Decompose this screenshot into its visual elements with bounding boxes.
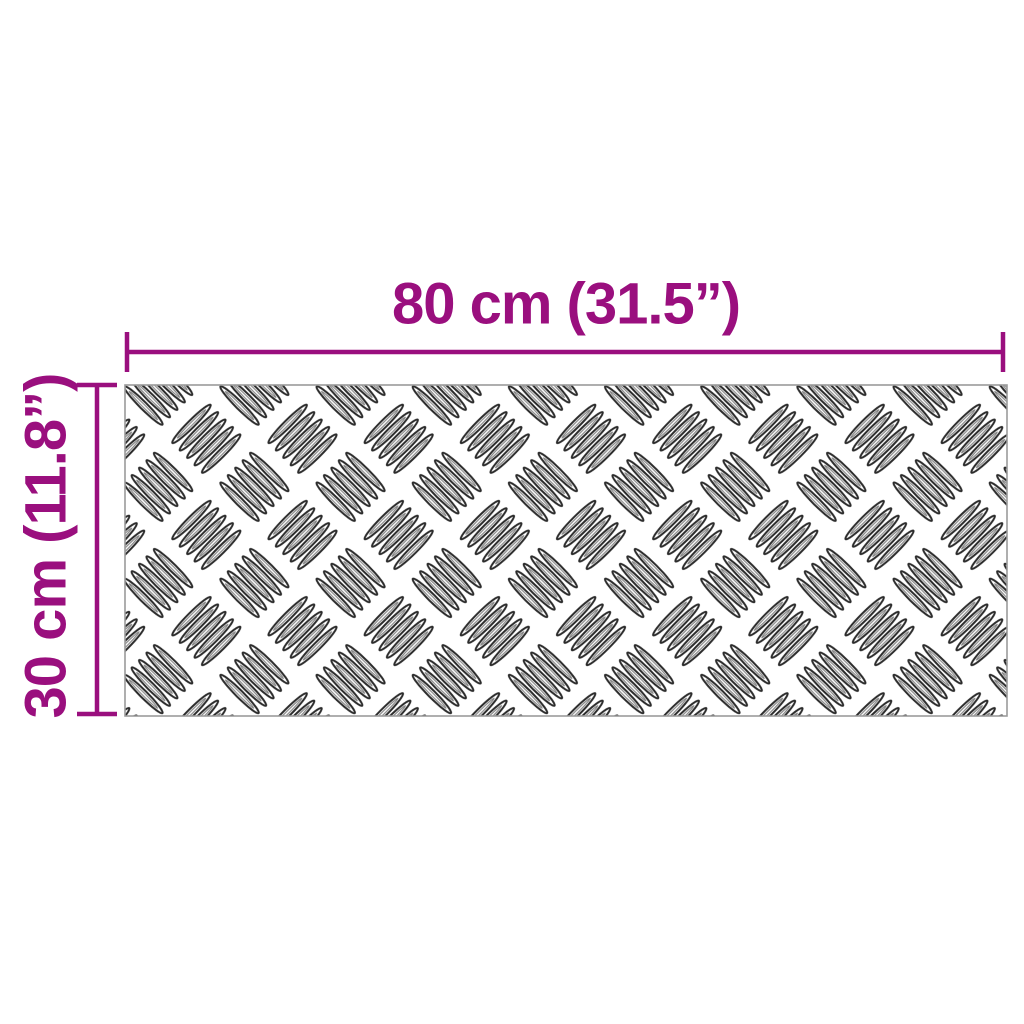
diagram-graphics (0, 0, 1024, 1024)
height-dimension-label: 30 cm (11.8”) (13, 374, 80, 719)
checker-plate (125, 385, 1007, 716)
product-dimension-diagram: 80 cm (31.5”) 30 cm (11.8”) (0, 0, 1024, 1024)
height-dimension-line (77, 385, 117, 714)
width-dimension-label: 80 cm (31.5”) (392, 271, 740, 338)
width-dimension-line (127, 332, 1003, 372)
